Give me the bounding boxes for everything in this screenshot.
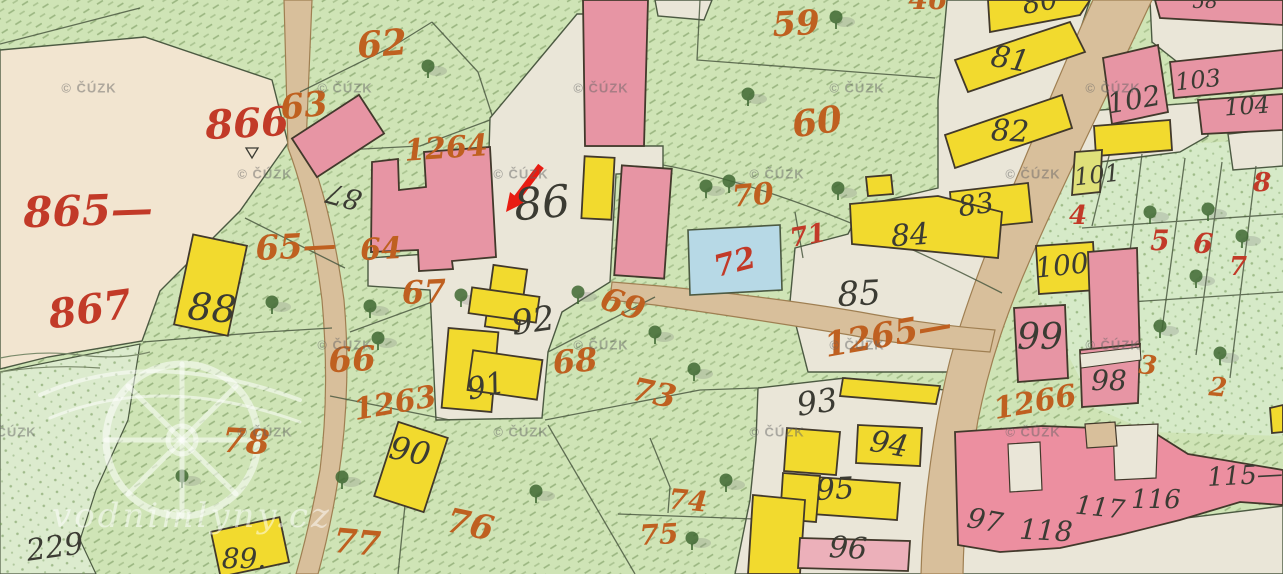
building-wood [784, 428, 840, 475]
water-parcel-72 [688, 225, 782, 295]
building-masonry [1198, 94, 1283, 134]
building-wood [581, 156, 614, 219]
building-masonry [798, 538, 910, 571]
building-wood [748, 495, 805, 574]
building-masonry [1103, 45, 1168, 124]
building-wood [856, 425, 922, 466]
building-wood [1036, 242, 1096, 294]
building-wood [1094, 120, 1172, 156]
building-masonry [1014, 305, 1068, 382]
building-wood [866, 175, 893, 196]
building-masonry [583, 0, 648, 146]
site-watermark-text: vodnimlyny.cz [52, 496, 332, 536]
cadastral-map-canvas [0, 0, 1283, 574]
cadastral-map-viewport[interactable]: 868788929190859394959697118117116115—989… [0, 0, 1283, 574]
building-masonry [614, 165, 672, 278]
parcel-101 [1072, 150, 1102, 195]
building-wood [812, 477, 900, 520]
building-wood [468, 350, 543, 399]
building-wood [1270, 405, 1283, 433]
